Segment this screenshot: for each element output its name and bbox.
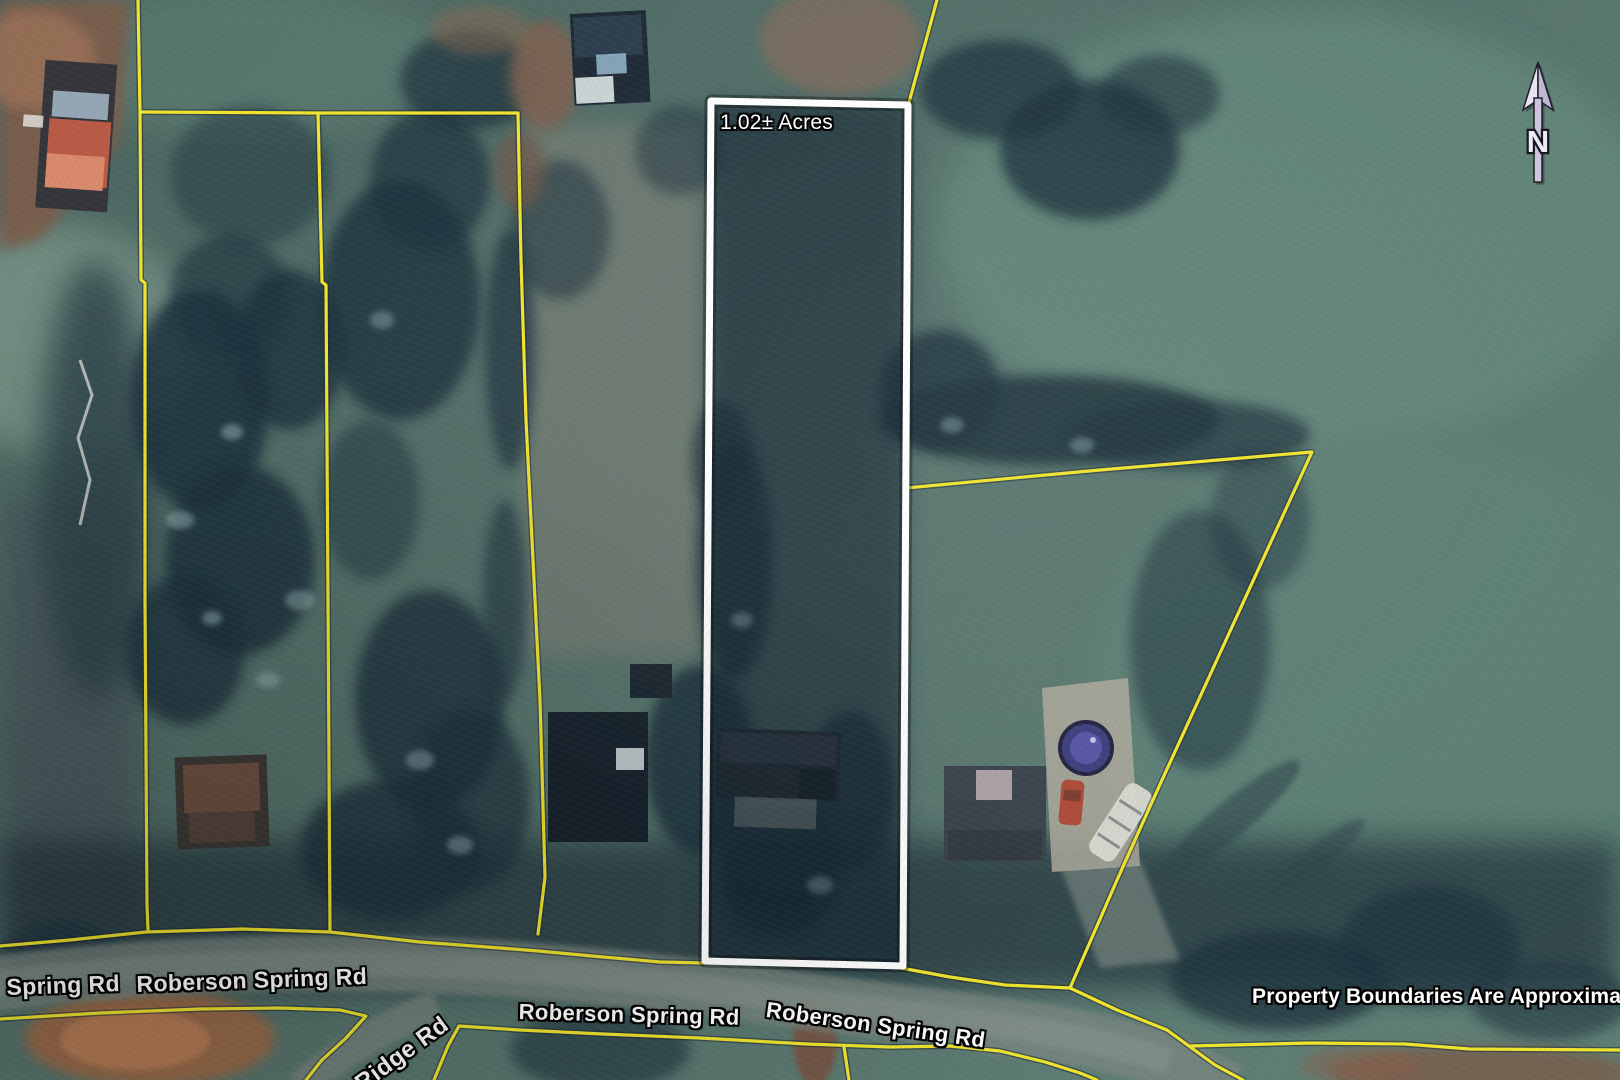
map-canvas: N 1.02± Acres Spring Rd Roberson Spring … xyxy=(0,0,1620,1080)
above-ground-pool xyxy=(1060,722,1112,774)
road-label-spring-rd: Spring Rd xyxy=(6,970,120,1001)
acreage-label: 1.02± Acres xyxy=(720,111,833,135)
shed xyxy=(630,664,672,698)
left-house xyxy=(174,754,269,849)
featured-parcel-boundary xyxy=(705,101,908,966)
right-house xyxy=(944,766,1046,862)
dark-building xyxy=(548,712,648,842)
north-label: N xyxy=(1527,124,1549,159)
red-car xyxy=(1058,779,1085,826)
disclaimer-text: Property Boundaries Are Approximate xyxy=(1252,985,1620,1009)
parcel-line-north xyxy=(140,112,518,113)
satellite-scene: N xyxy=(0,0,1620,1080)
barn-building xyxy=(570,10,651,106)
